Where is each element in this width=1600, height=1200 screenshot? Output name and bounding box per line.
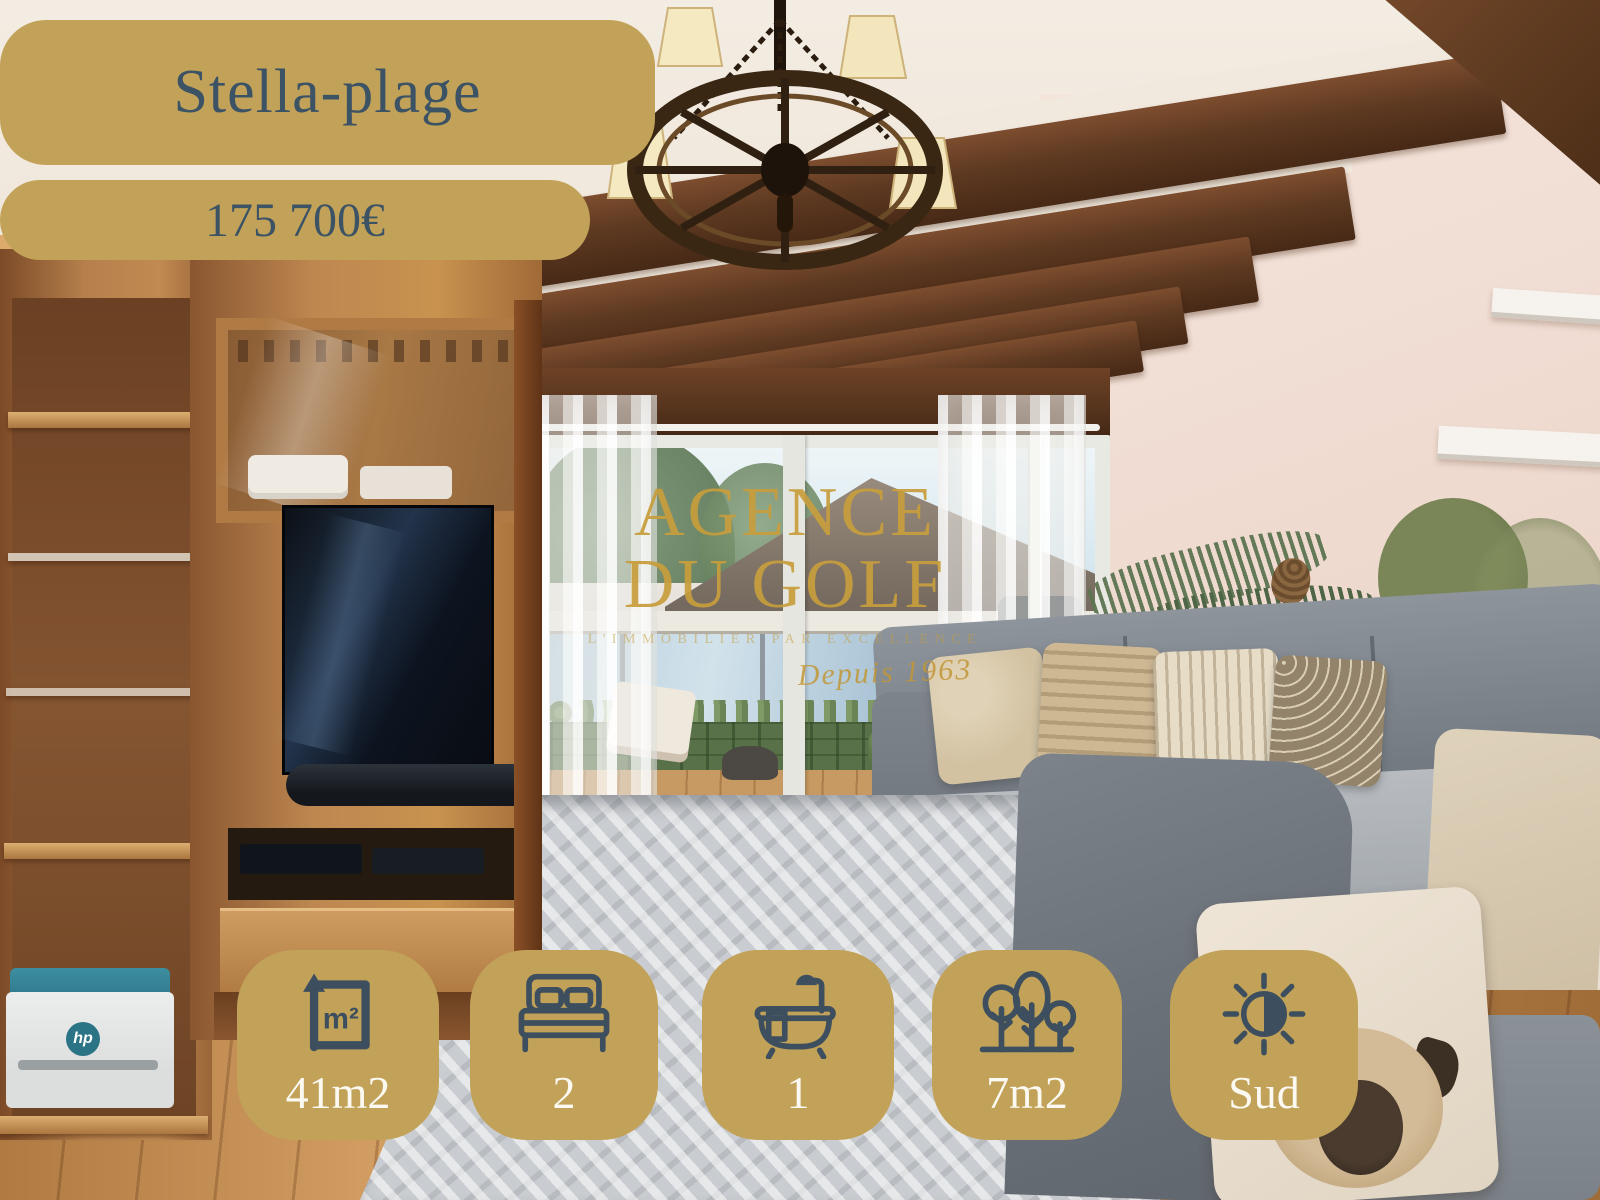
bathtub-icon — [746, 960, 850, 1068]
soundbar — [286, 764, 538, 806]
stat-badge-bathrooms: 1 — [702, 950, 894, 1140]
wall-unit-side-panel — [514, 300, 542, 1040]
plate-stack — [360, 466, 452, 499]
stat-label-garden: 7m2 — [986, 1070, 1068, 1116]
surface-icon: m² — [290, 960, 386, 1068]
plate-stack — [248, 455, 348, 499]
glass-shelf — [6, 688, 204, 696]
svg-text:m²: m² — [323, 1003, 359, 1036]
stat-badge-garden: 7m2 — [932, 950, 1122, 1140]
stat-badge-orientation: Sud — [1170, 950, 1358, 1140]
stat-badge-bedrooms: 2 — [470, 950, 658, 1140]
stat-label-bedrooms: 2 — [553, 1070, 576, 1116]
price-label: 175 700€ — [205, 193, 385, 248]
sun-icon — [1216, 960, 1312, 1068]
stat-badge-surface: m² 41m2 — [237, 950, 439, 1140]
door-center-divider — [783, 435, 805, 815]
glass-shelf — [8, 553, 204, 561]
dvd-player — [372, 848, 484, 874]
shelf-board — [0, 1116, 208, 1134]
listing-poster: hp AGENCE DU GOLF L'IMMOBILIER PAR EXCEL… — [0, 0, 1600, 1200]
trees-icon — [975, 960, 1079, 1068]
av-receiver — [240, 844, 362, 874]
balcony-figure — [722, 746, 778, 780]
stat-label-orientation: Sud — [1228, 1070, 1300, 1116]
location-label: Stella-plage — [173, 57, 481, 128]
stat-label-surface: 41m2 — [286, 1070, 391, 1116]
location-badge: Stella-plage — [0, 20, 655, 165]
shelf-board — [4, 843, 204, 859]
printer-paper-slot — [18, 1060, 158, 1070]
price-badge: 175 700€ — [0, 180, 590, 260]
shelf-board — [8, 412, 202, 428]
stat-label-bathrooms: 1 — [787, 1070, 810, 1116]
hp-logo: hp — [66, 1022, 100, 1056]
bed-icon — [512, 960, 616, 1068]
